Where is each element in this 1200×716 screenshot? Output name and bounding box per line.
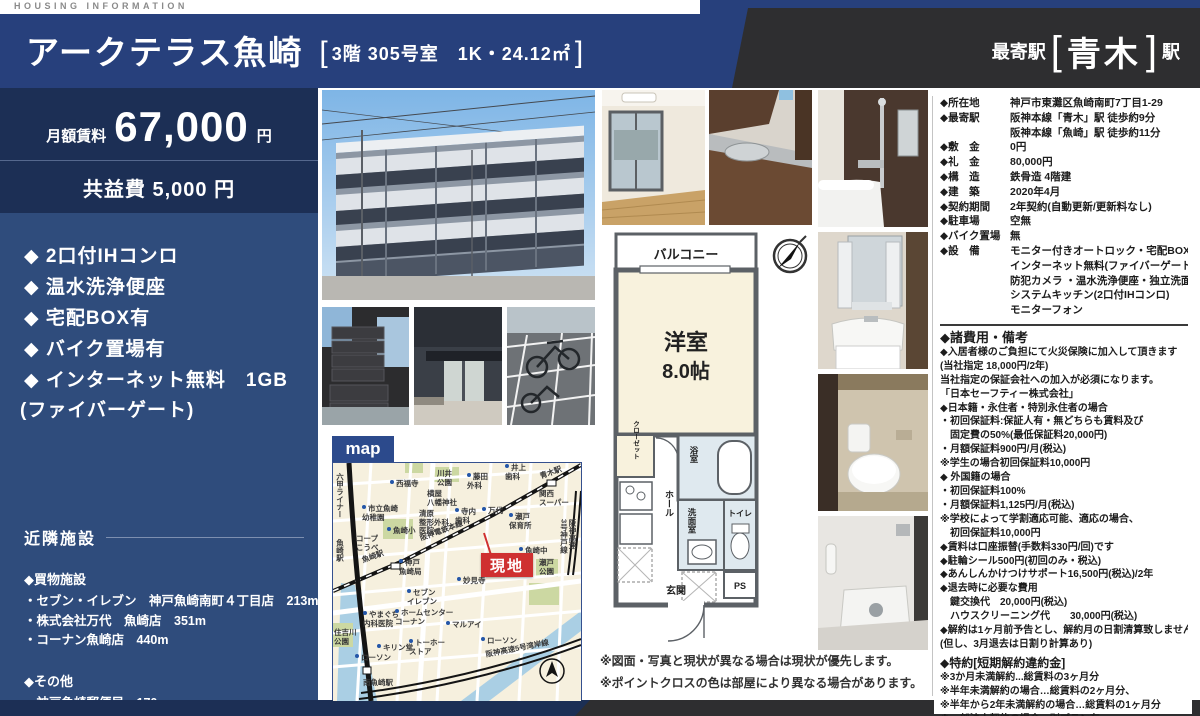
detail-row: システムキッチン(2口付IHコンロ): [940, 288, 1188, 303]
fee-line: ・初回保証料100%: [940, 485, 1188, 499]
detail-value: 0円: [1010, 140, 1188, 155]
station-name: 青木: [1067, 27, 1141, 76]
fee-line: ※学生の場合初回保証料10,000円: [940, 457, 1188, 471]
special-term-line: ※3か月未満解約...総賃料の3ヶ月分: [940, 671, 1188, 685]
map-label: 藤田 外科: [467, 473, 488, 490]
fee-line: ◆あんしんかけつけサポート16,500円(税込)/2年: [940, 568, 1188, 582]
detail-label: [940, 274, 1010, 289]
bracket-open: [: [319, 38, 327, 68]
detail-value: モニター付きオートロック・宅配BOX: [1010, 244, 1188, 259]
page-title: アークテラス魚崎: [26, 26, 303, 74]
fee-line: ◆ 外国籍の場合: [940, 471, 1188, 485]
map-label: 六甲ライナー: [335, 473, 344, 518]
detail-row: ◆駐車場 空無: [940, 214, 1188, 229]
map-label: 阪神高速 3号神戸線: [559, 519, 576, 553]
detail-label: ◆構 造: [940, 170, 1010, 185]
unit-info: 3階 305号室 1K・24.12㎡: [332, 40, 571, 66]
detail-label: ◆建 築: [940, 185, 1010, 200]
special-terms-list: ※3か月未満解約...総賃料の3ヶ月分 ※半年未満解約の場合…総賃料の2ヶ月分、…: [940, 671, 1188, 716]
photo-washbasin: [818, 232, 928, 369]
plan-hall-label: ホール: [664, 490, 674, 517]
map-label: 川井 公園: [437, 470, 452, 487]
plan-room-label: 洋室: [664, 330, 708, 355]
photo-delivery-boxes: [322, 307, 409, 425]
map-label: キリン堂: [377, 644, 413, 653]
map-label: 関西 スーパー: [539, 490, 569, 507]
map-label: 西福寺: [390, 480, 419, 489]
detail-row: モニターフォン: [940, 303, 1188, 318]
plan-note-line: ※ポイントクロスの色は部屋により異なる場合があります。: [600, 672, 922, 694]
shopping-title: ◆買物施設: [0, 569, 318, 588]
map-labels: 六甲ライナー 西福寺 川井 公園 藤田 外科 井上 歯科 青木駅 関西 スーパー…: [333, 463, 581, 701]
map-label: 瀬戸 公園: [539, 559, 554, 576]
details-rows: ◆所在地 神戸市東灘区魚崎南町7丁目1-29 ◆最寄駅 阪神本線「青木」駅 徒歩…: [940, 96, 1188, 318]
feature-item: ◆ 宅配BOX有: [24, 303, 318, 334]
map-label: 魚崎駅: [335, 539, 344, 562]
detail-value: インターネット無料(ファイバーゲート): [1010, 259, 1188, 274]
fee-line: ◆退去時に必要な費用: [940, 582, 1188, 596]
fees-title: ◆諸費用・備考: [940, 330, 1188, 346]
details-divider-line: [932, 96, 933, 696]
detail-value: 80,000円: [1010, 155, 1188, 170]
detail-row: 阪神本線「魚崎」駅 徒歩約11分: [940, 126, 1188, 141]
detail-value: 鉄骨造 4階建: [1010, 170, 1188, 185]
map-label: ホームセンター コーナン: [395, 609, 453, 626]
fee-line: ◆解約は1ヶ月前予告とし、解約月の日割清算致しません: [940, 624, 1188, 638]
pricing-block: 月額賃料 67,000 円 共益費 5,000 円: [0, 88, 318, 213]
map-label: 妙見寺: [457, 577, 486, 586]
map-canvas: 六甲ライナー 西福寺 川井 公園 藤田 外科 井上 歯科 青木駅 関西 スーパー…: [332, 462, 582, 702]
map-label: 横屋 八幡神社: [427, 490, 457, 507]
property-details-panel: ◆所在地 神戸市東灘区魚崎南町7丁目1-29 ◆最寄駅 阪神本線「青木」駅 徒歩…: [934, 88, 1192, 714]
detail-label: ◆最寄駅: [940, 111, 1010, 126]
fee-line: ・月額保証料900円/月(税込): [940, 443, 1188, 457]
neighborhood-header: 近隣施設: [0, 525, 318, 549]
special-terms-title: ◆特約[短期解約違約金]: [940, 655, 1188, 671]
nearest-station: 最寄駅 [ 青木 ] 駅: [992, 27, 1200, 76]
detail-label: ◆契約期間: [940, 200, 1010, 215]
feature-item: ◆ 2口付IHコンロ: [24, 241, 318, 272]
detail-label: ◆敷 金: [940, 140, 1010, 155]
rent-row: 月額賃料 67,000 円: [0, 88, 318, 151]
photo-bathroom: [818, 90, 928, 227]
fee-line: ◆賃料は口座振替(手数料330円/回)です: [940, 541, 1188, 555]
fee-line: ハウスクリーニング代 30,000円(税込): [940, 610, 1188, 624]
shopping-list: ・セブン・イレブン 神戸魚崎南町４丁目店 213m ・株式会社万代 魚崎店 35…: [0, 592, 318, 651]
detail-row: ◆礼 金 80,000円: [940, 155, 1188, 170]
floor-plan: バルコニー 洋室 8.0帖 クローゼット ホール: [612, 228, 818, 648]
station-unit: 駅: [1162, 38, 1180, 64]
eyebrow-text: HOUSING INFORMATION: [14, 1, 188, 11]
fee-line: 当社指定の保証会社への加入が必須になります。: [940, 374, 1188, 388]
map-label: トーホー ストア: [409, 639, 445, 656]
rent-value: 67,000: [114, 103, 248, 151]
map-section: map: [332, 436, 582, 702]
detail-value: 2020年4月: [1010, 185, 1188, 200]
plan-notes: ※図面・写真と現状が異なる場合は現状が優先します。 ※ポイントクロスの色は部屋に…: [600, 650, 922, 694]
detail-label: ◆駐車場: [940, 214, 1010, 229]
common-fee: 共益費 5,000 円: [0, 161, 318, 202]
map-label: 青木駅: [539, 465, 563, 481]
photo-entrance: [414, 307, 502, 425]
map-label: マルアイ: [446, 621, 482, 630]
detail-label: ◆所在地: [940, 96, 1010, 111]
detail-value: システムキッチン(2口付IHコンロ): [1010, 288, 1188, 303]
fee-line: (当社指定 18,000円/2年): [940, 360, 1188, 374]
neighborhood-title: 近隣施設: [24, 525, 96, 549]
feature-item: ◆ 温水洗浄便座: [24, 272, 318, 303]
photo-toilet: [818, 374, 928, 511]
detail-label: [940, 259, 1010, 274]
fee-line: ◆日本籍・永住者・特別永住者の場合: [940, 402, 1188, 416]
neighborhood-rule: [106, 537, 304, 538]
plan-note-line: ※図面・写真と現状が異なる場合は現状が優先します。: [600, 650, 922, 672]
photo-interior-room: [602, 90, 705, 225]
detail-row: ◆バイク置場 無: [940, 229, 1188, 244]
detail-row: ◆構 造 鉄骨造 4階建: [940, 170, 1188, 185]
map-label: 万代: [482, 507, 503, 516]
sidebar: 月額賃料 67,000 円 共益費 5,000 円 ◆ 2口付IHコンロ ◆ 温…: [0, 88, 318, 700]
header: HOUSING INFORMATION アークテラス魚崎 [ 3階 305号室 …: [0, 0, 1200, 88]
shop-item: ・セブン・イレブン 神戸魚崎南町４丁目店 213m: [24, 592, 318, 612]
special-term-line: ※半年未満解約の場合…総賃料の2ヶ月分、: [940, 685, 1188, 699]
map-label: 魚崎小: [387, 527, 416, 536]
detail-value: 2年契約(自動更新/更新料なし): [1010, 200, 1188, 215]
detail-label: [940, 288, 1010, 303]
map-label: やまぐち 内科医院: [363, 611, 399, 628]
map-label: ローソン: [355, 654, 391, 663]
shop-item: ・株式会社万代 魚崎店 351m: [24, 612, 318, 632]
detail-row: ◆契約期間 2年契約(自動更新/更新料なし): [940, 200, 1188, 215]
fee-line: ※学校によって学割適応可能、適応の場合、: [940, 513, 1188, 527]
fee-line: 固定費の50%(最低保証料20,000円): [940, 429, 1188, 443]
detail-label: ◆設 備: [940, 244, 1010, 259]
detail-row: ◆敷 金 0円: [940, 140, 1188, 155]
special-term-line: ※半年から2年未満解約の場合…総賃料の1ヶ月分: [940, 699, 1188, 713]
plan-compass-icon: [774, 236, 806, 272]
detail-value: 阪神本線「魚崎」駅 徒歩約11分: [1010, 126, 1188, 141]
plan-wash-label: 洗面室: [687, 507, 697, 534]
plan-balcony-label: バルコニー: [654, 247, 719, 262]
plan-room-size: 8.0帖: [662, 360, 710, 383]
fee-line: 鍵交換代 20,000円(税込): [940, 596, 1188, 610]
feature-list: ◆ 2口付IHコンロ ◆ 温水洗浄便座 ◆ 宅配BOX有 ◆ バイク置場有 ◆ …: [0, 213, 318, 396]
shop-item: ・コーナン魚崎店 440m: [24, 631, 318, 651]
feature-item: ◆ インターネット無料 1GB: [24, 365, 318, 396]
detail-row: ◆設 備 モニター付きオートロック・宅配BOX: [940, 244, 1188, 259]
detail-row: ◆所在地 神戸市東灘区魚崎南町7丁目1-29: [940, 96, 1188, 111]
photo-bicycle-parking: [507, 307, 595, 425]
detail-value: 防犯カメラ ・温水洗浄便座・独立洗面台: [1010, 274, 1188, 289]
detail-value: 阪神本線「青木」駅 徒歩約9分: [1010, 111, 1188, 126]
fee-line: 「日本セーフティー株式会社」: [940, 388, 1188, 402]
detail-label: ◆バイク置場: [940, 229, 1010, 244]
feature-subnote: (ファイバーゲート): [0, 396, 318, 425]
station-banner: 最寄駅 [ 青木 ] 駅: [710, 8, 1200, 88]
map-label: 住吉川 公園: [334, 629, 357, 646]
fee-line: (但し、3月退去は日割り計算あり): [940, 638, 1188, 652]
fee-line: 初回保証料10,000円: [940, 527, 1188, 541]
map-label: 井上 歯科: [505, 464, 526, 481]
fee-line: ・初回保証料:保証人有・無どちらも賃料及び: [940, 415, 1188, 429]
other-title: ◆その他: [0, 671, 318, 690]
plan-entrance-label: 玄関: [666, 584, 686, 597]
rent-label: 月額賃料: [46, 125, 106, 146]
detail-value: モニターフォン: [1010, 303, 1188, 318]
map-label: セブン イレブン: [407, 589, 437, 606]
station-bracket-open: [: [1051, 33, 1062, 69]
detail-label: ◆礼 金: [940, 155, 1010, 170]
feature-item: ◆ バイク置場有: [24, 334, 318, 365]
map-label: 神戸 魚崎局: [399, 559, 422, 576]
detail-row: 防犯カメラ ・温水洗浄便座・独立洗面台: [940, 274, 1188, 289]
site-marker: 現地: [481, 553, 533, 577]
station-bracket-close: ]: [1146, 33, 1157, 69]
plan-ps-label: PS: [734, 581, 746, 591]
details-section-divider: [940, 324, 1188, 326]
title-row: アークテラス魚崎 [ 3階 305号室 1K・24.12㎡ ]: [26, 26, 583, 74]
plan-toilet-label: トイレ: [728, 509, 752, 518]
plan-bath-label: 浴室: [689, 445, 699, 464]
fees-list: ◆入居者様のご負担にて火災保険に加入して頂きます (当社指定 18,000円/2…: [940, 346, 1188, 652]
detail-value: 神戸市東灘区魚崎南町7丁目1-29: [1010, 96, 1188, 111]
detail-row: ◆最寄駅 阪神本線「青木」駅 徒歩約9分: [940, 111, 1188, 126]
detail-label: [940, 303, 1010, 318]
photo-laundry-space: [818, 516, 928, 650]
detail-value: 無: [1010, 229, 1188, 244]
map-label: 瀬戸 保育所: [509, 513, 532, 530]
detail-row: インターネット無料(ファイバーゲート): [940, 259, 1188, 274]
photo-kitchen: [709, 90, 812, 225]
fee-line: ◆駐輪シール500円(初回のみ・税込): [940, 555, 1188, 569]
map-label: 市立魚崎 幼稚園: [362, 505, 398, 522]
bracket-close: ]: [575, 38, 583, 68]
unit-info-group: [ 3階 305号室 1K・24.12㎡ ]: [319, 38, 583, 68]
detail-label: [940, 126, 1010, 141]
fee-line: ・月額保証料1,125円/月(税込): [940, 499, 1188, 513]
photo-building-exterior: [322, 90, 595, 300]
detail-row: ◆建 築 2020年4月: [940, 185, 1188, 200]
station-label: 最寄駅: [992, 38, 1046, 64]
map-label: 南魚崎駅: [363, 679, 393, 688]
housing-flyer-page: HOUSING INFORMATION アークテラス魚崎 [ 3階 305号室 …: [0, 0, 1200, 716]
map-tab: map: [332, 436, 394, 462]
rent-unit: 円: [257, 125, 272, 146]
detail-value: 空無: [1010, 214, 1188, 229]
fee-line: ◆入居者様のご負担にて火災保険に加入して頂きます: [940, 346, 1188, 360]
